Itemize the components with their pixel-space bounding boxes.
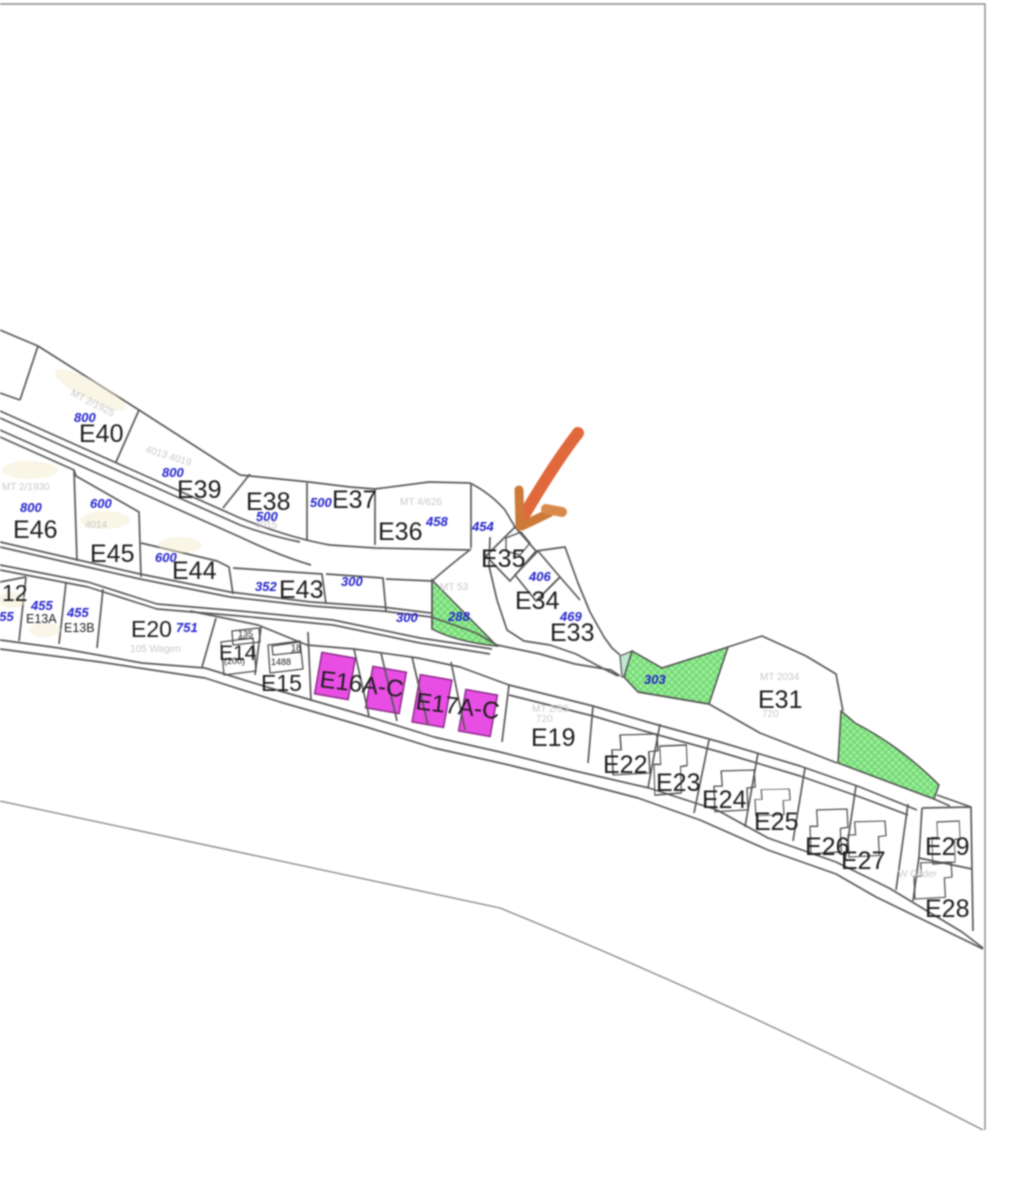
svg-text:12: 12 (2, 580, 28, 606)
svg-text:E13B: E13B (64, 621, 95, 635)
svg-text:300: 300 (341, 574, 363, 589)
svg-text:1488: 1488 (271, 657, 291, 667)
svg-text:288: 288 (447, 609, 470, 624)
svg-text:E31: E31 (758, 686, 802, 714)
svg-text:E36: E36 (378, 518, 422, 546)
svg-text:135: 135 (238, 629, 253, 639)
svg-text:MT 53: MT 53 (440, 582, 469, 593)
svg-text:751: 751 (176, 620, 198, 635)
svg-text:500: 500 (310, 495, 332, 510)
svg-text:E40: E40 (79, 420, 123, 448)
svg-text:455: 455 (30, 598, 53, 613)
svg-text:W Gilder: W Gilder (898, 869, 938, 880)
svg-text:18: 18 (291, 643, 301, 653)
svg-text:E39: E39 (177, 476, 221, 504)
svg-text:300: 300 (396, 610, 418, 625)
svg-text:406: 406 (528, 569, 551, 584)
svg-text:E27: E27 (841, 847, 885, 875)
svg-text:4014: 4014 (85, 520, 108, 531)
svg-text:E33: E33 (550, 619, 594, 647)
svg-text:E46: E46 (13, 516, 57, 544)
svg-text:E37: E37 (332, 486, 376, 514)
svg-text:800: 800 (20, 500, 42, 515)
svg-text:E29: E29 (925, 833, 969, 861)
svg-text:E45: E45 (90, 540, 134, 568)
svg-text:E14: E14 (219, 642, 257, 665)
svg-text:E20: E20 (131, 616, 172, 642)
svg-text:458: 458 (425, 514, 448, 529)
svg-text:600: 600 (90, 496, 112, 511)
svg-text:E25: E25 (754, 808, 798, 836)
svg-text:E13A: E13A (26, 612, 57, 626)
svg-text:455: 455 (0, 609, 14, 624)
svg-text:E23: E23 (656, 769, 700, 797)
svg-text:E24: E24 (702, 786, 747, 814)
svg-text:MT 2/1930: MT 2/1930 (2, 482, 50, 493)
svg-text:E15: E15 (261, 670, 302, 696)
svg-text:MT 2034: MT 2034 (760, 672, 800, 683)
svg-text:303: 303 (644, 672, 666, 687)
svg-text:E44: E44 (172, 557, 217, 585)
svg-text:E34: E34 (515, 587, 560, 615)
svg-text:E19: E19 (531, 724, 575, 752)
svg-text:E38: E38 (246, 488, 290, 516)
svg-text:105 Wagen: 105 Wagen (130, 644, 181, 655)
svg-text:E22: E22 (603, 751, 647, 779)
svg-text:MT 4/626: MT 4/626 (400, 497, 442, 508)
svg-text:E35: E35 (481, 545, 525, 573)
svg-text:352: 352 (255, 579, 277, 594)
svg-text:E28: E28 (925, 895, 969, 923)
svg-text:E43: E43 (279, 576, 323, 604)
svg-text:454: 454 (471, 519, 494, 534)
svg-text:455: 455 (66, 605, 89, 620)
